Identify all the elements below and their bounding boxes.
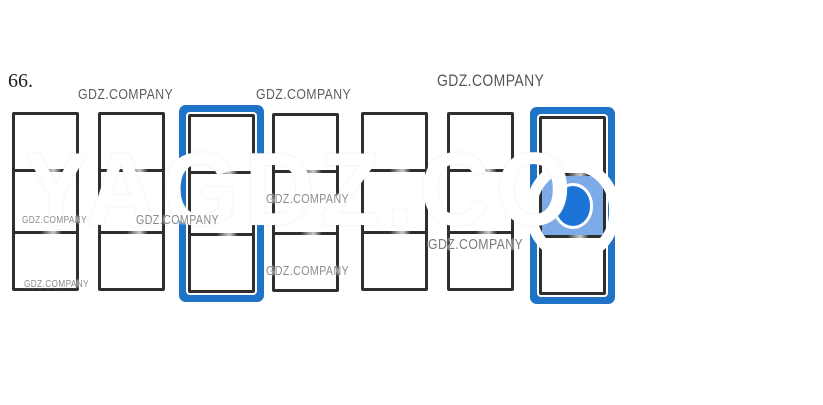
answer-card-5[interactable] — [361, 112, 428, 291]
cell-divider — [100, 169, 163, 172]
cell-divider — [363, 231, 426, 234]
watermark-label: GDZ.COMPANY — [136, 213, 219, 226]
answer-card-6[interactable] — [447, 112, 514, 291]
blue-dot — [553, 183, 593, 229]
cell-divider — [363, 169, 426, 172]
cell-divider — [14, 231, 77, 234]
watermark-label: GDZ.COMPANY — [428, 237, 523, 252]
cell-divider — [274, 232, 337, 235]
cell-divider — [14, 169, 77, 172]
answer-card-7[interactable] — [539, 116, 606, 295]
watermark-label: GDZ.COMPANY — [24, 280, 89, 290]
watermark-label: GDZ.COMPANY — [78, 87, 173, 102]
cell-divider — [274, 170, 337, 173]
cell-divider — [100, 231, 163, 234]
cell-divider — [449, 169, 512, 172]
cell-divider — [190, 171, 253, 174]
watermark-label: GDZ.COMPANY — [266, 264, 349, 277]
watermark-label: GDZ.COMPANY — [437, 72, 544, 89]
answer-card-1[interactable] — [12, 112, 79, 291]
pip-cell — [542, 176, 603, 235]
watermark-label: GDZ.COMPANY — [266, 192, 349, 205]
cell-divider — [190, 233, 253, 236]
watermark-label: GDZ.COMPANY — [256, 87, 351, 102]
answer-card-2[interactable] — [98, 112, 165, 291]
question-number: 66. — [8, 70, 33, 93]
cell-divider — [449, 231, 512, 234]
exercise-figure: 66. — [0, 0, 823, 405]
watermark-label: GDZ.COMPANY — [22, 216, 87, 226]
answer-card-3[interactable] — [188, 114, 255, 293]
